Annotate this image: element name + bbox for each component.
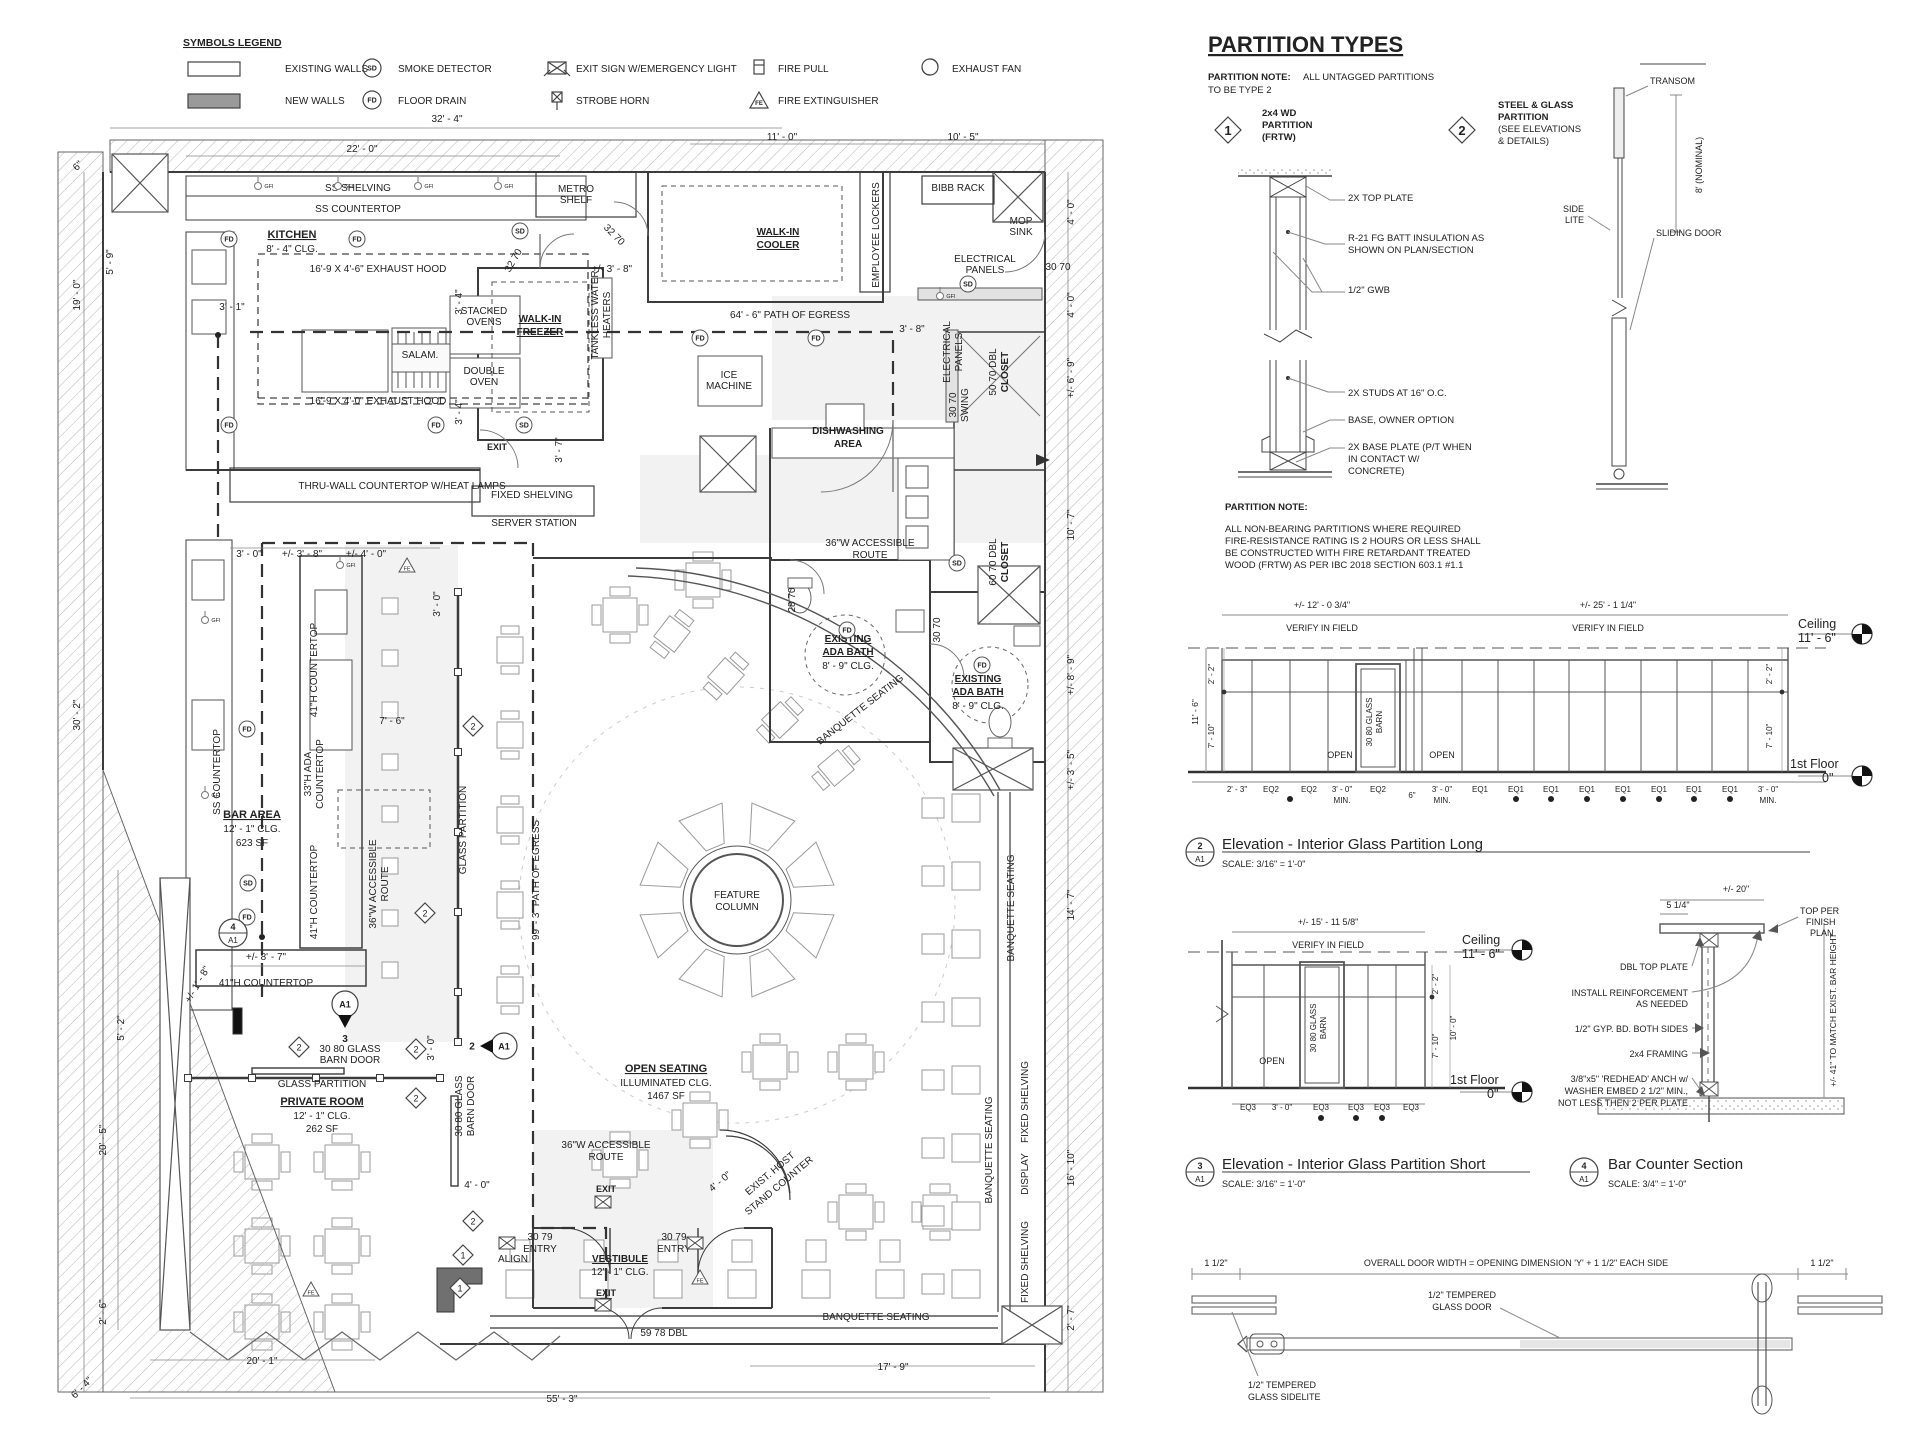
dim: 19' - 0": [72, 279, 83, 310]
eq: 6": [1408, 791, 1415, 800]
table: [314, 1134, 370, 1190]
svg-text:FE: FE: [403, 567, 410, 573]
eq: EQ1: [1722, 785, 1739, 794]
eq: EQ1: [1615, 785, 1632, 794]
bar-stool: [382, 650, 398, 666]
svg-text:A1: A1: [498, 1042, 510, 1052]
dim: +/- 3' - 5": [1066, 749, 1077, 790]
room-title: AREA: [834, 439, 862, 450]
gfi-marker: GFI: [415, 177, 435, 190]
room-sub: ILLUMINATED CLG.: [620, 1078, 712, 1089]
note2: WOOD (FRTW) AS PER IBC 2018 SECTION 603.…: [1225, 560, 1463, 571]
note-text: ALL UNTAGGED PARTITIONS: [1303, 72, 1434, 83]
target-marker: [1852, 624, 1872, 644]
bar-stool: [382, 806, 398, 822]
svg-text:FD: FD: [242, 727, 251, 734]
svg-text:SD: SD: [243, 881, 253, 888]
open: OPEN: [1429, 750, 1455, 760]
booth-table: [922, 1066, 980, 1094]
booth-table: [922, 930, 980, 958]
svg-text:3: 3: [342, 1034, 348, 1045]
exhaust-fan-icon: [922, 59, 938, 75]
dim: +/- 15' - 11 5/8": [1298, 917, 1359, 927]
dot-marker: [1727, 796, 1733, 802]
dim: 14' - 7": [1066, 889, 1077, 920]
room-area: 262 SF: [306, 1124, 338, 1135]
fixture-label: METRO: [558, 184, 594, 195]
callout: GLASS DOOR: [1432, 1302, 1492, 1312]
fd-marker: FD: [239, 721, 255, 737]
bar-stool: [382, 598, 398, 614]
fixture-label: STACKED: [461, 306, 508, 317]
fe-glyph: FE: [755, 101, 763, 107]
dim: 2' - 2": [1431, 974, 1440, 995]
svg-text:2: 2: [1197, 841, 1202, 851]
door-tag: 32 70: [601, 222, 627, 248]
sd-marker: SD: [240, 875, 256, 891]
fixture-label: TANKLESS WATER: [590, 270, 601, 359]
sec-marker: 3A1: [1186, 1158, 1214, 1186]
sd-glyph: SD: [367, 66, 377, 73]
radial-table: [786, 913, 834, 958]
callout: 3/8"x5" 'REDHEAD' ANCH w/: [1571, 1074, 1689, 1084]
egress-label: 99' - 3" PATH OF EGRESS: [531, 820, 542, 940]
callout: IN CONTACT W/: [1348, 454, 1420, 465]
dia-marker: 2: [1449, 117, 1475, 143]
dim: OVERALL DOOR WIDTH = OPENING DIMENSION '…: [1364, 1258, 1668, 1268]
dim: 16' - 10": [1066, 1149, 1077, 1186]
dim: 4' - 0": [1066, 292, 1077, 318]
table-2top: [497, 881, 523, 929]
booth-table: [922, 1134, 980, 1162]
exit-label: EXIT: [487, 442, 508, 452]
svg-text:FE: FE: [696, 1279, 703, 1285]
svg-text:FE: FE: [307, 1291, 314, 1297]
panel-title: PARTITION TYPES: [1208, 32, 1403, 57]
callout: R-21 FG BATT INSULATION AS: [1348, 233, 1484, 244]
door-tag: ENTRY: [523, 1244, 557, 1255]
svg-text:A1: A1: [1195, 1175, 1205, 1184]
fd-marker: FD: [221, 231, 237, 247]
note2-head: PARTITION NOTE:: [1225, 502, 1308, 513]
callout: SIDE: [1563, 204, 1584, 214]
dim: +/- 25' - 1 1/4": [1580, 600, 1636, 610]
route-label: ROUTE: [380, 866, 391, 901]
door-tag: 59 78 DBL: [640, 1328, 688, 1339]
fd-marker: FD: [428, 417, 444, 433]
door-tag: 30 80 GLASS: [1365, 698, 1374, 747]
dim: 5 1/4": [1666, 900, 1689, 910]
level: Ceiling: [1798, 617, 1836, 631]
exit-marker: [687, 1237, 703, 1249]
dim: 30' - 2": [72, 699, 83, 730]
target-marker: [1512, 1082, 1532, 1102]
callout: FINISH: [1806, 917, 1836, 927]
fixture-label: 33"H ADA: [303, 751, 314, 796]
dim: +/- 20": [1723, 884, 1749, 894]
svg-text:2: 2: [413, 1045, 418, 1055]
callout: 2x4 FRAMING: [1629, 1049, 1688, 1059]
note: ALIGN: [498, 1254, 528, 1265]
sec-marker: 4A1: [1570, 1158, 1598, 1186]
fixture-label: OVEN: [470, 377, 498, 388]
vif: VERIFY IN FIELD: [1286, 623, 1358, 633]
door-tag: 28 70: [787, 587, 798, 612]
door-tag: 30 80 GLASS: [1309, 1004, 1318, 1053]
dim: 3' - 4": [454, 289, 465, 315]
gfi-marker: GFI: [255, 177, 275, 190]
fixture-label: BANQUETTE SEATING: [822, 1312, 929, 1323]
legend-existing-walls: EXISTING WALLS: [285, 64, 368, 75]
new-wall-swatch: [188, 94, 240, 108]
door-tag: 30 70: [948, 392, 959, 417]
table-2top: [754, 694, 807, 746]
table: [742, 1034, 798, 1090]
dim: 4' - 0": [464, 1180, 490, 1191]
type2-name: & DETAILS): [1498, 136, 1549, 147]
exit-sign-icon: [544, 62, 570, 76]
fixture-label: SINK: [1009, 227, 1033, 238]
door-tag: BARN DOOR: [466, 1076, 477, 1137]
fixture-label: 16'-9 X 4'-6" EXHAUST HOOD: [310, 264, 447, 275]
table: [314, 1294, 370, 1350]
drawing-title: Bar Counter Section: [1608, 1156, 1743, 1173]
dim: +/- 6' - 9": [1066, 357, 1077, 398]
legend-strobe: STROBE HORN: [576, 96, 649, 107]
type2-name: (SEE ELEVATIONS: [1498, 124, 1581, 135]
dia-marker: 2: [463, 1211, 483, 1231]
dim: 7' - 6": [379, 716, 405, 727]
fixture-label: SS COUNTERTOP: [212, 729, 223, 815]
svg-text:GFI: GFI: [264, 184, 274, 190]
fixture-label: EMPLOYEE LOCKERS: [871, 182, 882, 288]
sec-marker: 4A1: [219, 919, 247, 947]
svg-text:1: 1: [460, 1251, 465, 1261]
dim: 3' - 0": [432, 591, 443, 617]
bar-stool: [382, 910, 398, 926]
exit-label: EXIT: [596, 1288, 617, 1298]
note2: FIRE-RESISTANCE RATING IS 2 HOURS OR LES…: [1225, 536, 1481, 547]
table-2top: [497, 626, 523, 674]
room-title: ADA BATH: [952, 687, 1003, 698]
sd-marker: SD: [516, 417, 532, 433]
svg-text:GFI: GFI: [344, 184, 354, 190]
room-area: 1467 SF: [647, 1091, 685, 1102]
svg-text:SD: SD: [515, 229, 525, 236]
room-sub: 8' - 9" CLG.: [822, 661, 874, 672]
fixture-label: FIXED SHELVING: [1020, 1061, 1031, 1143]
sec-marker: 2A1: [1186, 838, 1214, 866]
dim: 55' - 3": [546, 1394, 577, 1405]
dot-marker: [259, 934, 265, 940]
svg-text:FD: FD: [352, 237, 361, 244]
dot-marker: [1287, 796, 1293, 802]
exit-marker: [499, 1237, 515, 1249]
bar-stool: [382, 962, 398, 978]
booth-table: [922, 862, 980, 890]
dim: 10' - 5": [947, 132, 978, 143]
radial-table: [750, 949, 795, 997]
dia-marker: 2: [406, 1088, 426, 1108]
svg-text:FD: FD: [431, 423, 440, 430]
route-label: 36"W ACCESSIBLE: [561, 1140, 650, 1151]
legend-sd: SMOKE DETECTOR: [398, 64, 492, 75]
sheet: SD FD FE SYMBOLS LEGENDEXISTING WALLSNEW…: [0, 0, 1920, 1440]
fixture-label: SHELF: [560, 195, 592, 206]
room-title: VESTIBULE: [592, 1254, 648, 1265]
dia-marker: 1: [1215, 117, 1241, 143]
dim: 7' - 10": [1765, 723, 1774, 748]
fixture-label: 41"H COUNTERTOP: [309, 845, 320, 940]
door-tag: SWING: [960, 388, 971, 422]
gfi-marker: GFI: [495, 177, 515, 190]
dim: 7' - 10": [1431, 1033, 1440, 1058]
booth-table: [876, 1240, 904, 1298]
strobe-horn-icon: [552, 92, 562, 110]
type1-name: 2x4 WD: [1262, 108, 1296, 119]
table-2top: [809, 743, 862, 794]
radial-table: [679, 949, 724, 997]
dim: +/- 4' - 0": [346, 549, 387, 560]
dim: 1 1/2": [1810, 1258, 1833, 1268]
table-2top: [497, 796, 523, 844]
eq: EQ2: [1301, 785, 1318, 794]
table-2top: [700, 649, 751, 702]
fd-marker: FD: [808, 330, 824, 346]
svg-text:2: 2: [422, 909, 427, 919]
callout: 2X TOP PLATE: [1348, 193, 1413, 204]
callout: 1/2" GWB: [1348, 285, 1390, 296]
svg-text:A1: A1: [339, 1000, 351, 1010]
svg-text:FD: FD: [811, 336, 820, 343]
dot-marker: [1379, 1115, 1385, 1121]
fixture-label: ELECTRICAL: [942, 321, 953, 383]
svg-text:2: 2: [1458, 123, 1465, 138]
callout: WASHER EMBED 2 1/2" MIN.,: [1565, 1086, 1688, 1096]
eq: EQ1: [1543, 785, 1560, 794]
door-tag: 30 79: [661, 1232, 686, 1243]
dot-marker: [1353, 1115, 1359, 1121]
exit-marker: [595, 1196, 611, 1208]
legend-new-walls: NEW WALLS: [285, 96, 345, 107]
svg-text:GFI: GFI: [211, 793, 221, 799]
note-text: TO BE TYPE 2: [1208, 85, 1272, 96]
dim: 2' - 6": [98, 1299, 109, 1325]
eq: 3' - 0": [1432, 785, 1453, 794]
fixture-label: BANQUETTE SEATING: [815, 673, 906, 748]
dia-marker: 2: [289, 1037, 309, 1057]
panel-markers: 122A13A14A1: [1186, 117, 1872, 1186]
svg-text:SD: SD: [963, 282, 973, 289]
existing-wall-swatch: [188, 62, 240, 76]
svg-text:1: 1: [1224, 123, 1231, 138]
svg-text:SD: SD: [519, 423, 529, 430]
note-head: PARTITION NOTE:: [1208, 72, 1291, 83]
gfi-marker: GFI: [202, 611, 222, 624]
svg-text:FD: FD: [224, 423, 233, 430]
table: [592, 587, 648, 643]
fixture-label: 41"H COUNTERTOP: [309, 623, 320, 718]
callout: SLIDING DOOR: [1656, 228, 1722, 238]
room-sub: 8' - 9" CLG.: [952, 701, 1004, 712]
sd-marker: SD: [960, 276, 976, 292]
legend-fd: FLOOR DRAIN: [398, 96, 466, 107]
room-title: CLOSET: [1000, 542, 1011, 583]
target-marker: [1852, 766, 1872, 786]
fd-marker: FD: [839, 622, 855, 638]
dim: +/- 3' - 8": [282, 549, 323, 560]
type1-name: (FRTW): [1262, 132, 1296, 143]
svg-text:2: 2: [470, 1217, 475, 1227]
elevation-short: [1188, 932, 1530, 1172]
fixture-label: FIXED SHELVING: [1020, 1221, 1031, 1303]
dim: 22' - 0": [346, 144, 377, 155]
table-2top: [497, 966, 523, 1014]
type1-name: PARTITION: [1262, 120, 1313, 131]
legend-labels: SYMBOLS LEGENDEXISTING WALLSNEW WALLSSMO…: [183, 37, 1021, 107]
legend-title: SYMBOLS LEGEND: [183, 37, 282, 49]
door-tag: 50 70 DBL: [988, 348, 999, 396]
callout: NOT LESS THEN 2 PER PLATE: [1558, 1098, 1688, 1108]
bar-stool: [382, 754, 398, 770]
svg-text:2: 2: [413, 1094, 418, 1104]
callout: TRANSOM: [1650, 76, 1695, 86]
dim: +/- 3' - 8": [592, 264, 633, 275]
room-title: WALK-IN: [519, 314, 562, 325]
room-area: 623 SF: [236, 838, 268, 849]
type2-name: PARTITION: [1498, 112, 1549, 123]
booth-table: [922, 1270, 980, 1298]
svg-text:GFI: GFI: [424, 184, 434, 190]
svg-text:A1: A1: [1579, 1175, 1589, 1184]
door-tag: BARN: [1375, 711, 1384, 733]
dot-marker: [1548, 796, 1554, 802]
eq: EQ3: [1313, 1103, 1330, 1112]
eq: EQ1: [1686, 785, 1703, 794]
vif: VERIFY IN FIELD: [1572, 623, 1644, 633]
fixture-label: COLUMN: [715, 902, 758, 913]
svg-text:FD: FD: [977, 663, 986, 670]
table: [314, 1218, 370, 1274]
booth-table: [922, 794, 980, 822]
level: 1st Floor: [1450, 1073, 1499, 1087]
radial-table: [786, 842, 834, 887]
legend-fire-pull: FIRE PULL: [778, 64, 829, 75]
booth-table: [922, 998, 980, 1026]
eq: MIN.: [1334, 796, 1351, 805]
room-sub: 12' - 1" CLG.: [223, 824, 280, 835]
radial-table: [640, 913, 688, 958]
route-label: 36"W ACCESSIBLE: [825, 538, 914, 549]
fixture-label: COUNTERTOP: [315, 739, 326, 809]
dim: 4' - 0": [1066, 199, 1077, 225]
fixture-label: GLASS PARTITION: [278, 1079, 367, 1090]
svg-text:2: 2: [469, 1042, 475, 1053]
dim: 3' - 7": [554, 437, 565, 463]
eq: EQ1: [1579, 785, 1596, 794]
dim: 20' - 5": [98, 1124, 109, 1155]
elevation-long: [1188, 615, 1852, 852]
dim: 3' - 4": [454, 399, 465, 425]
fixture-label: OVENS: [466, 317, 501, 328]
svg-text:SD: SD: [952, 561, 962, 568]
door-tag: 30 80 GLASS: [454, 1075, 465, 1136]
dim: 3' - 0": [236, 549, 262, 560]
target-marker: [1512, 940, 1532, 960]
legend-exit-sign: EXIT SIGN W/EMERGENCY LIGHT: [576, 64, 737, 75]
svg-text:2: 2: [296, 1043, 301, 1053]
door-tag: ENTRY: [657, 1244, 691, 1255]
route-label: ROUTE: [589, 1152, 624, 1163]
fixture-label: SS COUNTERTOP: [315, 204, 401, 215]
fixture-label: PANELS: [966, 265, 1005, 276]
panel-labels: PARTITION TYPESPARTITION NOTE:ALL UNTAGG…: [1190, 32, 1840, 1402]
eq: EQ3: [1240, 1103, 1257, 1112]
callout: 1/2" TEMPERED: [1428, 1290, 1497, 1300]
room-title: DISHWASHING: [812, 426, 884, 437]
fixture-label: DISPLAY: [1020, 1153, 1031, 1195]
callout: DBL TOP PLATE: [1620, 962, 1688, 972]
room-title: WALK-IN: [757, 227, 800, 238]
callout: TOP PER: [1800, 906, 1840, 916]
dim: 17' - 9": [877, 1362, 908, 1373]
radial-table: [679, 803, 724, 851]
exit-label: EXIT: [596, 1184, 617, 1194]
dim: 7' - 10": [1207, 723, 1216, 748]
eq: EQ2: [1263, 785, 1280, 794]
door-tag: 32 70: [503, 247, 525, 275]
callout: 2X STUDS AT 16" O.C.: [1348, 388, 1447, 399]
room-title: ADA BATH: [822, 647, 873, 658]
route-label: ROUTE: [853, 550, 888, 561]
fixture-label: FEATURE: [714, 890, 760, 901]
svg-text:FD: FD: [695, 336, 704, 343]
partition1-section: [1238, 168, 1345, 477]
door-tag: BARN: [1319, 1017, 1328, 1039]
eq: MIN.: [1434, 796, 1451, 805]
eq: EQ3: [1374, 1103, 1391, 1112]
room-title: COOLER: [757, 240, 801, 251]
dim: 10' - 7": [1066, 509, 1077, 540]
fixture-label: SALAM.: [402, 350, 439, 361]
svg-text:GFI: GFI: [211, 618, 221, 624]
dia-marker: 2: [463, 716, 483, 736]
dim: 5' - 2": [116, 1015, 127, 1041]
fire-pull-icon: [754, 60, 764, 74]
note2: BE CONSTRUCTED WITH FIRE RETARDANT TREAT…: [1225, 548, 1470, 559]
svg-text:4: 4: [230, 922, 235, 932]
level: 11' - 6": [1462, 947, 1500, 961]
vif: VERIFY IN FIELD: [1292, 940, 1364, 950]
svg-text:A1: A1: [228, 936, 238, 945]
eq: EQ1: [1472, 785, 1489, 794]
svg-text:3: 3: [1197, 1161, 1202, 1171]
exit-marker: [595, 1299, 611, 1311]
eq: 3' - 0": [1332, 785, 1353, 794]
table-2top: [647, 607, 697, 661]
eq: EQ3: [1403, 1103, 1420, 1112]
fd-glyph: FD: [367, 98, 376, 105]
fixture-label: FIXED SHELVING: [491, 490, 573, 501]
sd-marker: SD: [512, 223, 528, 239]
door-tag: 30 70: [932, 617, 943, 642]
callout: AS NEEDED: [1636, 999, 1689, 1009]
dim: 1 1/2": [1204, 1258, 1227, 1268]
gfi-marker: GFI: [335, 177, 355, 190]
egress-label: 64' - 6" PATH OF EGRESS: [730, 310, 850, 321]
dim: 3' - 8": [899, 324, 925, 335]
fixture-label: 41"H COUNTERTOP: [219, 978, 314, 989]
